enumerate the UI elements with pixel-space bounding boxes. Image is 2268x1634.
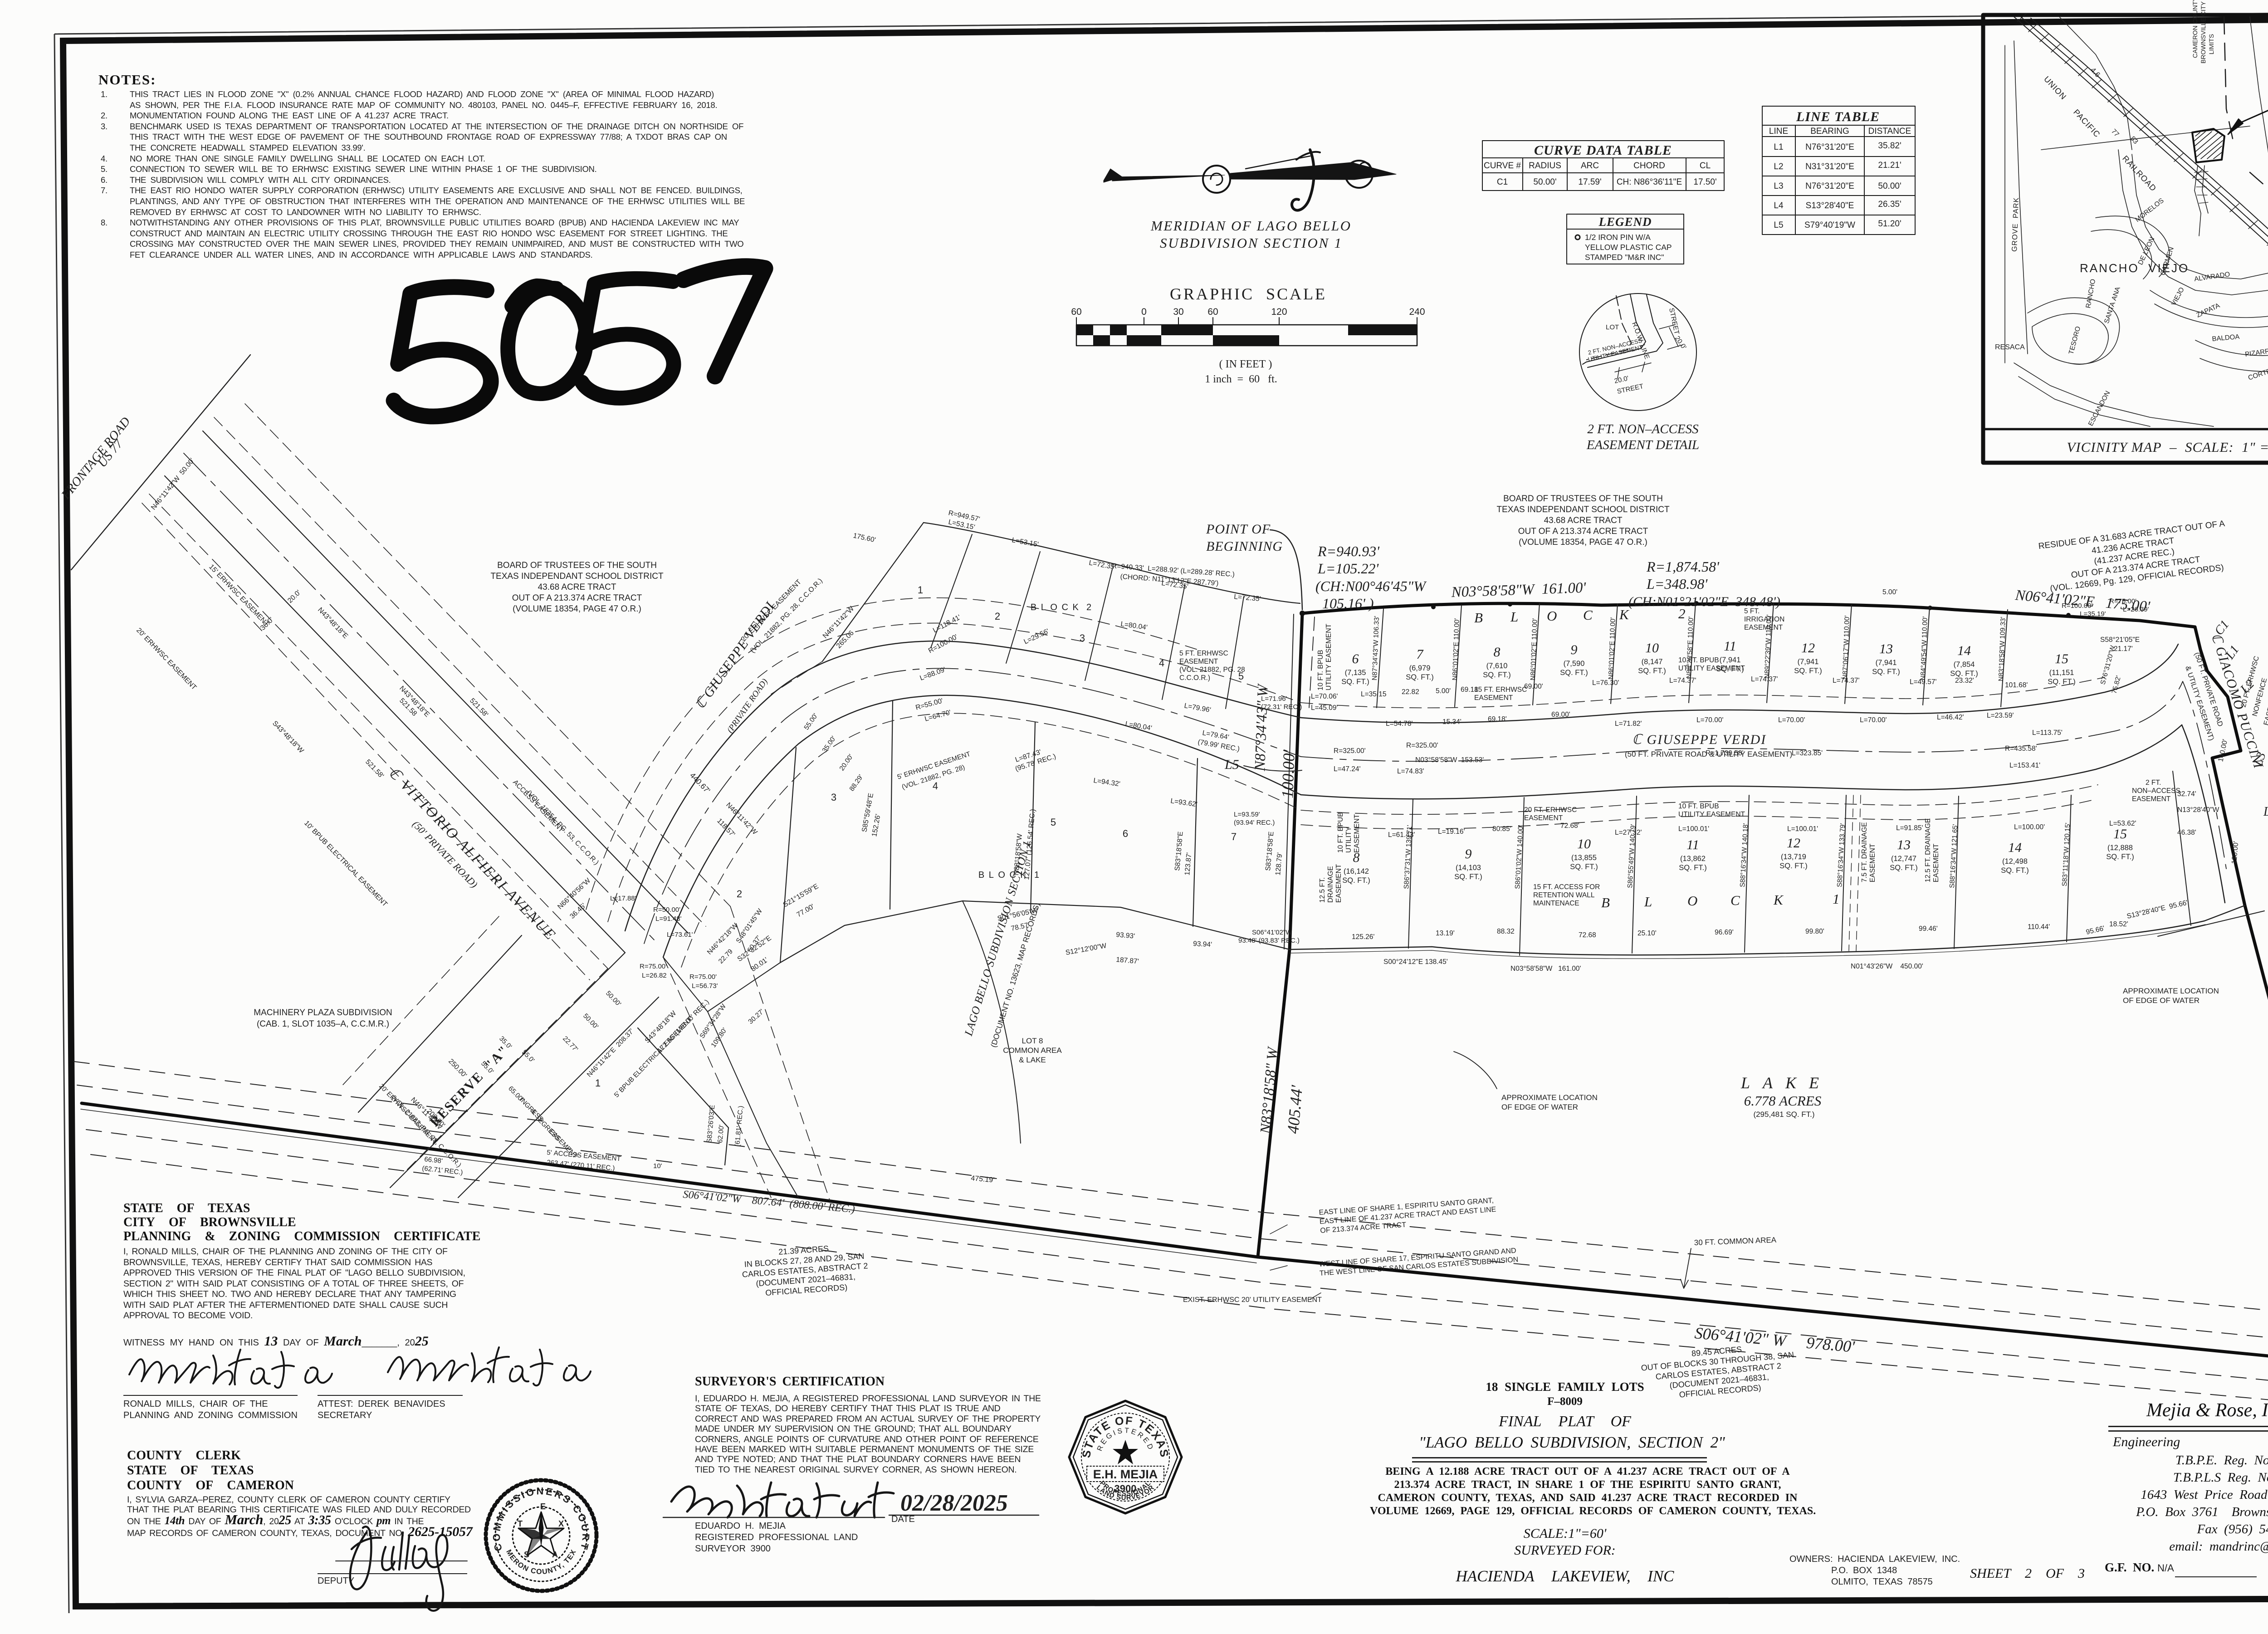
- svg-text:S83°18'58"E: S83°18'58"E: [1264, 831, 1276, 871]
- svg-text:EASEMENT: EASEMENT: [1179, 658, 1218, 665]
- svg-text:15 FT. ERHWSC: 15 FT. ERHWSC: [1474, 686, 1527, 694]
- svg-text:475.19': 475.19': [971, 1174, 995, 1184]
- svg-text:OF EDGE OF WATER: OF EDGE OF WATER: [2123, 996, 2200, 1005]
- svg-text:L=26.39': L=26.39': [2123, 606, 2149, 613]
- svg-text:128.79': 128.79': [1274, 852, 1284, 876]
- svg-text:R=55.00': R=55.00': [915, 697, 944, 711]
- svg-text:L=70.00': L=70.00': [1696, 716, 1723, 724]
- svg-text:N31°31'20"E: N31°31'20"E: [1805, 162, 1854, 171]
- svg-text:10' BPUB ELECTRICAL EASEMENT: 10' BPUB ELECTRICAL EASEMENT: [303, 819, 389, 908]
- svg-text:N03°58'58"W 153.53': N03°58'58"W 153.53': [1415, 756, 1484, 764]
- svg-text:26.35': 26.35': [1878, 200, 1901, 209]
- svg-text:L5: L5: [1224, 757, 1239, 772]
- svg-text:N87°06'17"W 110.00': N87°06'17"W 110.00': [1841, 615, 1851, 680]
- svg-text:N83°18'58" W: N83°18'58" W: [1257, 1046, 1281, 1135]
- svg-text:SQ. FT.): SQ. FT.): [1483, 671, 1510, 679]
- svg-text:120: 120: [1271, 307, 1287, 317]
- svg-text:35.00': 35.00': [821, 734, 837, 754]
- svg-text:(8,147: (8,147: [1642, 658, 1663, 666]
- svg-text:93.48' (93.83' REC.): 93.48' (93.83' REC.): [1238, 937, 1300, 944]
- svg-text:L=93.59': L=93.59': [1234, 811, 1260, 818]
- svg-text:PIZARRO: PIZARRO: [2244, 347, 2268, 358]
- svg-text:L=80.04': L=80.04': [1120, 620, 1148, 631]
- svg-text:(6,979: (6,979: [1409, 664, 1431, 672]
- svg-text:1: 1: [918, 584, 923, 596]
- svg-text:SQ. FT.): SQ. FT.): [1638, 667, 1666, 675]
- svg-text:EASEMENT: EASEMENT: [1524, 814, 1563, 822]
- svg-text:N86°01'02"E 110.00': N86°01'02"E 110.00': [1607, 617, 1617, 680]
- svg-text:17.59': 17.59': [1578, 177, 1601, 187]
- svg-text:COMMON AREA: COMMON AREA: [1003, 1046, 1062, 1055]
- svg-text:ℂ GIUSEPPE VERDI: ℂ GIUSEPPE VERDI: [1632, 732, 1766, 747]
- svg-text:140.00': 140.00': [2217, 739, 2229, 763]
- svg-text:5: 5: [1238, 670, 1244, 682]
- svg-text:20.0': 20.0': [1613, 375, 1629, 385]
- svg-text:0: 0: [1141, 307, 1147, 317]
- svg-text:E.H. MEJIA: E.H. MEJIA: [1093, 1468, 1158, 1481]
- svg-text:14: 14: [2008, 840, 2022, 855]
- svg-text:60: 60: [1207, 307, 1218, 317]
- svg-text:OF EDGE OF WATER: OF EDGE OF WATER: [1501, 1103, 1578, 1111]
- svg-text:(12,498: (12,498: [2002, 857, 2028, 866]
- svg-text:N03°58'58"W 161.00': N03°58'58"W 161.00': [1510, 965, 1581, 973]
- svg-text:10 FT. BPUB: 10 FT. BPUB: [1317, 650, 1325, 690]
- svg-text:B L O C K 2: B L O C K 2: [1031, 602, 1092, 612]
- svg-text:80.01': 80.01': [750, 956, 770, 973]
- svg-text:5: 5: [1051, 817, 1056, 828]
- svg-text:30: 30: [1173, 307, 1183, 317]
- svg-text:N89°22'39"W 110.00': N89°22'39"W 110.00': [1763, 614, 1773, 679]
- svg-text:N13°28'40"W: N13°28'40"W: [2177, 806, 2219, 814]
- svg-text:UTILITY EASEMENT: UTILITY EASEMENT: [1678, 811, 1745, 818]
- svg-text:13.19': 13.19': [1436, 930, 1455, 937]
- svg-text:11: 11: [1724, 639, 1736, 654]
- svg-text:20.0': 20.0': [286, 589, 303, 605]
- svg-text:69.00': 69.00': [1524, 683, 1543, 690]
- svg-text:69.18': 69.18': [1488, 715, 1507, 723]
- svg-text:405.44': 405.44': [1284, 1084, 1306, 1135]
- svg-text:15: 15: [2113, 827, 2127, 841]
- svg-text:240: 240: [1409, 307, 1425, 317]
- svg-text:L=64.70': L=64.70': [924, 709, 952, 723]
- svg-text:B: B: [1601, 895, 1610, 910]
- svg-text:L=100.01': L=100.01': [1787, 825, 1818, 833]
- svg-text:L=53.15': L=53.15': [1011, 536, 1039, 548]
- svg-text:15' ERHWSC EASEMENT: 15' ERHWSC EASEMENT: [207, 563, 271, 628]
- svg-text:E: E: [540, 1502, 546, 1511]
- svg-text:N46°42'18"W: N46°42'18"W: [706, 921, 740, 956]
- svg-text:S00°24'12"E 138.45': S00°24'12"E 138.45': [1383, 958, 1448, 966]
- svg-text:(CH:N00°46'45"W: (CH:N00°46'45"W: [1315, 578, 1427, 594]
- svg-text:12.5 FT.: 12.5 FT.: [1319, 877, 1326, 903]
- svg-text:R=75.00': R=75.00': [640, 963, 667, 970]
- svg-text:175.60': 175.60': [852, 532, 876, 544]
- svg-text:UNION: UNION: [2042, 74, 2068, 102]
- svg-text:UTILITY EASEMENT: UTILITY EASEMENT: [1325, 623, 1333, 690]
- svg-text:N76°31'20"E: N76°31'20"E: [1805, 142, 1854, 152]
- svg-text:RETENTION WALL: RETENTION WALL: [1533, 891, 1595, 899]
- svg-text:DRAINAGE: DRAINAGE: [1327, 866, 1334, 903]
- svg-text:S79°40'19"W: S79°40'19"W: [1804, 220, 1855, 230]
- svg-text:(13,719: (13,719: [1781, 853, 1806, 861]
- svg-text:IRRIGATION: IRRIGATION: [1744, 616, 1784, 623]
- svg-text:2 FT. NON–ACCESS: 2 FT. NON–ACCESS: [1587, 422, 1699, 436]
- svg-text:APPROXIMATE LOCATION: APPROXIMATE LOCATION: [1501, 1093, 1598, 1102]
- svg-text:N46°11'42"W 50.00': N46°11'42"W 50.00': [150, 457, 196, 512]
- svg-text:BOARD OF TRUSTEES OF THE SOUTH: BOARD OF TRUSTEES OF THE SOUTH: [497, 561, 657, 570]
- svg-text:L=100.01': L=100.01': [1678, 825, 1709, 833]
- svg-text:15: 15: [2055, 651, 2068, 666]
- svg-text:CH: N86°36'11"E: CH: N86°36'11"E: [1617, 177, 1682, 187]
- svg-text:22.77': 22.77': [561, 1035, 579, 1053]
- svg-text:ZAPATA: ZAPATA: [2195, 302, 2221, 319]
- svg-text:80.85': 80.85': [1492, 825, 1511, 833]
- svg-text:30.27': 30.27': [747, 1008, 765, 1026]
- svg-text:L=91.48': L=91.48': [655, 915, 682, 923]
- svg-text:(VOL. 18354, PG. 53, C.C.O.R.): (VOL. 18354, PG. 53, C.C.O.R.): [525, 789, 600, 866]
- svg-text:MAINTENACE: MAINTENACE: [1533, 900, 1579, 907]
- svg-text:X: X: [558, 1519, 564, 1528]
- svg-text:CURVE #: CURVE #: [1484, 161, 1521, 171]
- svg-text:BOARD OF TRUSTEES OF THE SOUTH: BOARD OF TRUSTEES OF THE SOUTH: [1503, 494, 1663, 504]
- svg-text:521.58': 521.58': [468, 697, 489, 719]
- svg-text:(295,481 SQ. FT.): (295,481 SQ. FT.): [1753, 1110, 1814, 1119]
- svg-text:RADIUS: RADIUS: [1529, 161, 1561, 171]
- svg-text:LAKE: LAKE: [1740, 1074, 1832, 1092]
- svg-text:(PRIVATE ROAD): (PRIVATE ROAD): [725, 677, 770, 734]
- svg-text:2 FT.: 2 FT.: [2146, 779, 2161, 787]
- svg-text:1 inch = 60 ft.: 1 inch = 60 ft.: [1205, 373, 1277, 385]
- svg-text:& LAKE: & LAKE: [1019, 1056, 1046, 1064]
- svg-text:(16,142: (16,142: [1344, 867, 1369, 876]
- svg-text:21.21': 21.21': [1878, 161, 1901, 170]
- svg-text:18.52': 18.52': [2109, 920, 2128, 928]
- svg-text:S13°28'40"E: S13°28'40"E: [1806, 201, 1854, 210]
- svg-text:EASEMENT: EASEMENT: [2132, 795, 2171, 803]
- svg-text:N46°11'42"E 208.37': N46°11'42"E 208.37': [586, 1027, 635, 1078]
- svg-text:N86°01'02"E 110.00': N86°01'02"E 110.00': [1529, 618, 1539, 681]
- svg-text:EXIST. ERHWSC 20' UTILITY EASE: EXIST. ERHWSC 20' UTILITY EASEMENT: [1183, 1296, 1322, 1304]
- svg-text:1: 1: [1833, 891, 1840, 907]
- svg-text:5 FT.: 5 FT.: [1744, 607, 1760, 615]
- svg-text:5.00': 5.00': [1882, 588, 1897, 596]
- svg-text:3: 3: [831, 792, 836, 803]
- svg-text:SQ. FT.): SQ. FT.): [1570, 863, 1598, 871]
- svg-text:SQ. FT.): SQ. FT.): [1794, 667, 1822, 675]
- svg-text:17.50': 17.50': [1693, 177, 1716, 187]
- svg-text:L=70.00': L=70.00': [1860, 716, 1887, 724]
- svg-text:TESORO: TESORO: [2067, 325, 2082, 355]
- svg-text:9: 9: [1571, 642, 1578, 657]
- svg-text:L=54.78': L=54.78': [1386, 720, 1413, 728]
- svg-text:S83°11'18"W 120.15': S83°11'18"W 120.15': [2061, 822, 2072, 886]
- svg-text:UTILITY: UTILITY: [1345, 827, 1353, 853]
- svg-text:LEGEND: LEGEND: [1598, 215, 1652, 229]
- svg-text:S21°15'59"E: S21°15'59"E: [782, 882, 820, 909]
- svg-text:100.00': 100.00': [1278, 749, 1298, 798]
- svg-text:(13,862: (13,862: [1680, 855, 1706, 863]
- svg-text:(14,103: (14,103: [1456, 864, 1481, 872]
- svg-text:(CAB. 1, SLOT 1035–A, C.C.M.R.: (CAB. 1, SLOT 1035–A, C.C.M.R.): [257, 1019, 389, 1029]
- svg-text:46.38': 46.38': [2177, 829, 2196, 837]
- svg-text:12.5 FT. DRAINAGE: 12.5 FT. DRAINAGE: [1924, 818, 1932, 882]
- svg-text:L=17.88': L=17.88': [610, 895, 636, 902]
- svg-text:TEXAS INDEPENDANT SCHOOL DISTR: TEXAS INDEPENDANT SCHOOL DISTRICT: [490, 572, 664, 581]
- svg-text:L=45.09': L=45.09': [1311, 704, 1338, 712]
- svg-text:118.57': 118.57': [715, 817, 736, 838]
- svg-text:95.66': 95.66': [2085, 925, 2106, 936]
- svg-text:72.68': 72.68': [1560, 822, 1579, 830]
- svg-text:( IN FEET ): ( IN FEET ): [1219, 358, 1272, 370]
- svg-text:L5: L5: [1774, 220, 1783, 230]
- svg-text:6: 6: [1123, 828, 1128, 839]
- svg-text:S88°16'34"W 121.65': S88°16'34"W 121.65': [1948, 824, 1959, 888]
- svg-text:SQ. FT.): SQ. FT.): [2048, 678, 2075, 686]
- svg-text:ESCANDON: ESCANDON: [2087, 390, 2112, 427]
- svg-text:CHORD: CHORD: [1633, 161, 1665, 171]
- svg-text:RANCHO VIEJO: RANCHO VIEJO: [2080, 261, 2189, 275]
- svg-text:SQ. FT.): SQ. FT.): [1454, 873, 1482, 881]
- svg-text:R=75.00': R=75.00': [2109, 597, 2136, 605]
- svg-text:(7,610: (7,610: [1486, 662, 1508, 670]
- svg-text:50.00': 50.00': [604, 989, 622, 1008]
- svg-text:2: 2: [737, 888, 742, 900]
- svg-text:10 FT. BPUB: 10 FT. BPUB: [1678, 802, 1719, 810]
- svg-text:(93.94' REC.): (93.94' REC.): [1234, 819, 1275, 827]
- svg-text:99.80': 99.80': [1805, 928, 1824, 935]
- svg-text:(VOLUME 18354, PAGE 47 O.R.): (VOLUME 18354, PAGE 47 O.R.): [1519, 538, 1647, 547]
- svg-text:N76°31'20"E: N76°31'20"E: [1805, 181, 1854, 191]
- svg-text:C.C.O.R.): C.C.O.R.): [1179, 674, 1210, 682]
- svg-text:L=47.24': L=47.24': [1334, 765, 1360, 773]
- svg-text:EASEMENT: EASEMENT: [1869, 843, 1877, 882]
- svg-text:RESERVE "A": RESERVE "A": [427, 1042, 512, 1130]
- svg-text:CAMERON COUNTY: CAMERON COUNTY: [2191, 0, 2199, 58]
- svg-text:R=940.93': R=940.93': [1317, 543, 1380, 559]
- svg-text:SQ. FT.): SQ. FT.): [1560, 669, 1588, 677]
- svg-text:ARC: ARC: [1581, 161, 1599, 171]
- svg-text:ALVARADO: ALVARADO: [2194, 270, 2230, 283]
- svg-text:T: T: [518, 1519, 523, 1528]
- svg-text:10': 10': [653, 1162, 662, 1170]
- svg-text:L=27.32': L=27.32': [1615, 829, 1642, 837]
- svg-text:LOT: LOT: [1606, 323, 1619, 331]
- svg-text:DISTANCE: DISTANCE: [1868, 127, 1911, 136]
- svg-text:CORTEZ: CORTEZ: [2247, 366, 2268, 382]
- svg-text:50.00': 50.00': [582, 1012, 600, 1031]
- svg-text:O: O: [1547, 608, 1557, 624]
- svg-text:L=80.04': L=80.04': [1124, 720, 1153, 732]
- svg-text:62.00': 62.00': [716, 1124, 725, 1143]
- svg-text:S83°18'58"E: S83°18'58"E: [1173, 831, 1185, 871]
- svg-text:EASEMENT: EASEMENT: [1474, 694, 1513, 702]
- svg-text:93.94': 93.94': [1193, 940, 1212, 949]
- svg-text:B: B: [1474, 610, 1483, 626]
- svg-text:L=93.62': L=93.62': [1170, 797, 1198, 808]
- svg-text:93.93': 93.93': [1116, 931, 1135, 940]
- svg-text:A: A: [552, 1550, 558, 1559]
- svg-text:S06°41'02"W: S06°41'02"W: [1252, 929, 1292, 936]
- svg-text:SQ. FT.): SQ. FT.): [1890, 864, 1917, 872]
- svg-text:EASEMENT DETAIL: EASEMENT DETAIL: [1586, 438, 1699, 452]
- svg-text:(7,590: (7,590: [1564, 660, 1585, 668]
- svg-text:5 FT. ERHWSC: 5 FT. ERHWSC: [1179, 650, 1228, 657]
- svg-text:VICINITY MAP – SCALE: 1" =2: VICINITY MAP – SCALE: 1" =2,000': [2067, 439, 2268, 455]
- svg-text:SANTA ANA: SANTA ANA: [2103, 286, 2122, 324]
- svg-text:LINE: LINE: [1769, 127, 1788, 136]
- svg-text:60: 60: [1071, 307, 1081, 317]
- svg-text:MACHINERY PLAZA SUBDIVISION: MACHINERY PLAZA SUBDIVISION: [254, 1008, 392, 1018]
- svg-text:OUT OF A 213.374 ACRE TRACT: OUT OF A 213.374 ACRE TRACT: [512, 593, 642, 603]
- svg-text:L: L: [1644, 894, 1652, 910]
- svg-text:L=35.15: L=35.15: [1361, 690, 1386, 698]
- svg-text:(VOL. 21882, PG. 28: (VOL. 21882, PG. 28: [1179, 666, 1245, 674]
- svg-text:L=100.00': L=100.00': [2014, 823, 2045, 831]
- svg-text:30 FT. COMMON AREA: 30 FT. COMMON AREA: [1694, 1236, 1777, 1247]
- svg-text:50.00': 50.00': [1878, 181, 1901, 191]
- svg-text:L=53.62': L=53.62': [2109, 820, 2136, 827]
- svg-text:EASEMENT: EASEMENT: [1353, 814, 1361, 853]
- svg-text:C1: C1: [1497, 177, 1508, 187]
- svg-text:L=153.41': L=153.41': [2009, 762, 2040, 769]
- svg-text:LOT 8: LOT 8: [1022, 1037, 1043, 1045]
- svg-text:L=348.98': L=348.98': [1646, 576, 1708, 592]
- svg-text:7.5 FT. DRAINAGE: 7.5 FT. DRAINAGE: [1861, 822, 1868, 882]
- svg-text:21.17': 21.17': [2114, 645, 2133, 653]
- svg-text:S86°01'02"W 140.00': S86°01'02"W 140.00': [1514, 825, 1525, 889]
- svg-text:POINT OF: POINT OF: [1206, 522, 1271, 537]
- svg-text:S12°12'00"W: S12°12'00"W: [1065, 942, 1107, 957]
- svg-text:SQ. FT.): SQ. FT.): [1679, 864, 1706, 872]
- svg-text:(VOLUME 18354, PAGE 47 O.R.): (VOLUME 18354, PAGE 47 O.R.): [513, 604, 641, 614]
- svg-text:15.34': 15.34': [1442, 718, 1461, 726]
- svg-text:L=74.83': L=74.83': [1397, 768, 1424, 775]
- svg-text:20.00': 20.00': [838, 753, 855, 772]
- svg-text:13: 13: [1879, 641, 1893, 656]
- svg-text:109.80': 109.80': [709, 1027, 728, 1049]
- svg-text:BEARING: BEARING: [1810, 127, 1849, 136]
- svg-text:(7,941: (7,941: [1720, 656, 1741, 664]
- svg-text:S13°28'40"E 95.66': S13°28'40"E 95.66': [2126, 899, 2189, 920]
- svg-text:L3: L3: [1774, 181, 1783, 191]
- svg-text:S43°48'18"W: S43°48'18"W: [271, 719, 305, 755]
- svg-text:75.82': 75.82': [2110, 675, 2122, 695]
- svg-text:L=113.75': L=113.75': [2032, 729, 2063, 737]
- svg-text:OUT OF A 213.374 ACRE TRACT: OUT OF A 213.374 ACRE TRACT: [1518, 527, 1648, 536]
- svg-text:20 FT. ERHWSC: 20 FT. ERHWSC: [1524, 806, 1577, 814]
- svg-text:12: 12: [1787, 836, 1800, 851]
- svg-text:L4: L4: [1774, 201, 1784, 210]
- svg-text:L2: L2: [1774, 162, 1783, 171]
- svg-text:55.00': 55.00': [802, 712, 819, 731]
- svg-text:L=70.00': L=70.00': [1778, 716, 1805, 724]
- svg-text:50.00': 50.00': [1533, 177, 1556, 187]
- svg-text:L=105.22': L=105.22': [1317, 560, 1379, 577]
- svg-text:187.87': 187.87': [1116, 956, 1139, 965]
- svg-text:8: 8: [1494, 645, 1501, 660]
- svg-text:N01°43'26"W 450.00': N01°43'26"W 450.00': [1851, 963, 1923, 970]
- svg-text:O: O: [1687, 893, 1697, 909]
- svg-text:11: 11: [1686, 837, 1699, 852]
- svg-text:72.68: 72.68: [1579, 931, 1596, 939]
- svg-text:L=323.85': L=323.85': [1792, 749, 1823, 757]
- svg-text:99.46': 99.46': [1919, 925, 1938, 933]
- svg-text:L=73.61': L=73.61': [667, 931, 693, 939]
- svg-text:VIEJO: VIEJO: [2170, 286, 2186, 307]
- svg-text:SQ. FT.): SQ. FT.): [1341, 678, 1369, 686]
- svg-text:(12,888: (12,888: [2107, 844, 2133, 852]
- svg-text:110.44': 110.44': [2028, 923, 2050, 931]
- svg-text:(11,151: (11,151: [2049, 669, 2074, 677]
- svg-text:(61.81' REC.): (61.81' REC.): [733, 1106, 745, 1147]
- svg-text:K: K: [1773, 892, 1784, 908]
- svg-text:23.32': 23.32': [1955, 677, 1974, 685]
- svg-text:L=46.42': L=46.42': [1937, 714, 1964, 721]
- svg-text:N84°49'54"W 110.00': N84°49'54"W 110.00': [1919, 616, 1929, 680]
- svg-text:LINE TABLE: LINE TABLE: [1796, 109, 1880, 124]
- svg-text:L=35.19': L=35.19': [2080, 610, 2106, 618]
- svg-text:PACIFIC: PACIFIC: [2072, 108, 2102, 139]
- svg-text:L=91.85': L=91.85': [1896, 824, 1923, 832]
- svg-text:125.26': 125.26': [1352, 933, 1374, 941]
- svg-text:L=56.73': L=56.73': [692, 982, 718, 990]
- svg-text:51.20': 51.20': [1878, 219, 1901, 229]
- svg-text:123.87': 123.87': [1183, 852, 1193, 876]
- svg-text:35.82': 35.82': [1878, 141, 1901, 151]
- svg-text:4: 4: [1159, 657, 1164, 669]
- svg-text:R=1,874.58': R=1,874.58': [1646, 558, 1720, 575]
- svg-text:4: 4: [933, 780, 938, 792]
- svg-text:L=23.59': L=23.59': [1987, 712, 2014, 719]
- svg-text:105.16' ): 105.16' ): [1322, 595, 1374, 612]
- svg-text:43.68 ACRE TRACT: 43.68 ACRE TRACT: [538, 582, 616, 592]
- svg-text:120.00': 120.00': [2230, 841, 2240, 865]
- svg-text:RAILROAD: RAILROAD: [2121, 154, 2158, 193]
- svg-text:13: 13: [1897, 837, 1911, 852]
- svg-text:R=435.58': R=435.58': [2005, 745, 2037, 753]
- svg-text:20.0': 20.0': [1673, 335, 1688, 351]
- svg-text:2: 2: [995, 611, 1000, 622]
- svg-text:69.00': 69.00': [1551, 711, 1570, 719]
- svg-text:77: 77: [2110, 127, 2121, 138]
- svg-text:55.0': 55.0': [520, 1048, 536, 1064]
- svg-text:521.58': 521.58': [364, 758, 385, 780]
- svg-text:BEGINNING: BEGINNING: [1206, 539, 1283, 554]
- svg-text:(7,854: (7,854: [1954, 660, 1975, 669]
- svg-text:SQ. FT.): SQ. FT.): [1342, 876, 1370, 885]
- svg-text:(13,855: (13,855: [1571, 854, 1597, 862]
- svg-text:SQ. FT.): SQ. FT.): [2001, 866, 2028, 875]
- svg-text:88.32: 88.32: [1497, 928, 1515, 935]
- svg-text:96.69': 96.69': [1715, 929, 1734, 936]
- svg-text:BROWNSVILLE CITY: BROWNSVILLE CITY: [2200, 1, 2207, 64]
- svg-text:10: 10: [1645, 641, 1659, 656]
- svg-text:SQ. FT.): SQ. FT.): [2106, 853, 2134, 861]
- svg-text:(12,747: (12,747: [1891, 855, 1916, 863]
- svg-text:10 FT. BPUB: 10 FT. BPUB: [1337, 812, 1344, 853]
- svg-text:RESACA: RESACA: [1995, 343, 2025, 351]
- svg-text:N66°40'56"W: N66°40'56"W: [556, 876, 592, 911]
- svg-text:RANCHO: RANCHO: [2084, 279, 2097, 309]
- svg-text:NON–ACCESS: NON–ACCESS: [2132, 787, 2180, 795]
- svg-text:14: 14: [1957, 643, 1971, 658]
- svg-text:L: L: [1510, 609, 1518, 625]
- svg-text:02/28/2025: 02/28/2025: [900, 1490, 1008, 1516]
- svg-text:MERIDIAN OF LAGO BELLO: MERIDIAN OF LAGO BELLO: [1150, 218, 1350, 234]
- svg-text:TEXAS INDEPENDANT SCHOOL DISTR: TEXAS INDEPENDANT SCHOOL DISTRICT: [1496, 505, 1670, 514]
- svg-text:22.82: 22.82: [1402, 688, 1419, 696]
- svg-text:BALDOA: BALDOA: [2212, 333, 2240, 343]
